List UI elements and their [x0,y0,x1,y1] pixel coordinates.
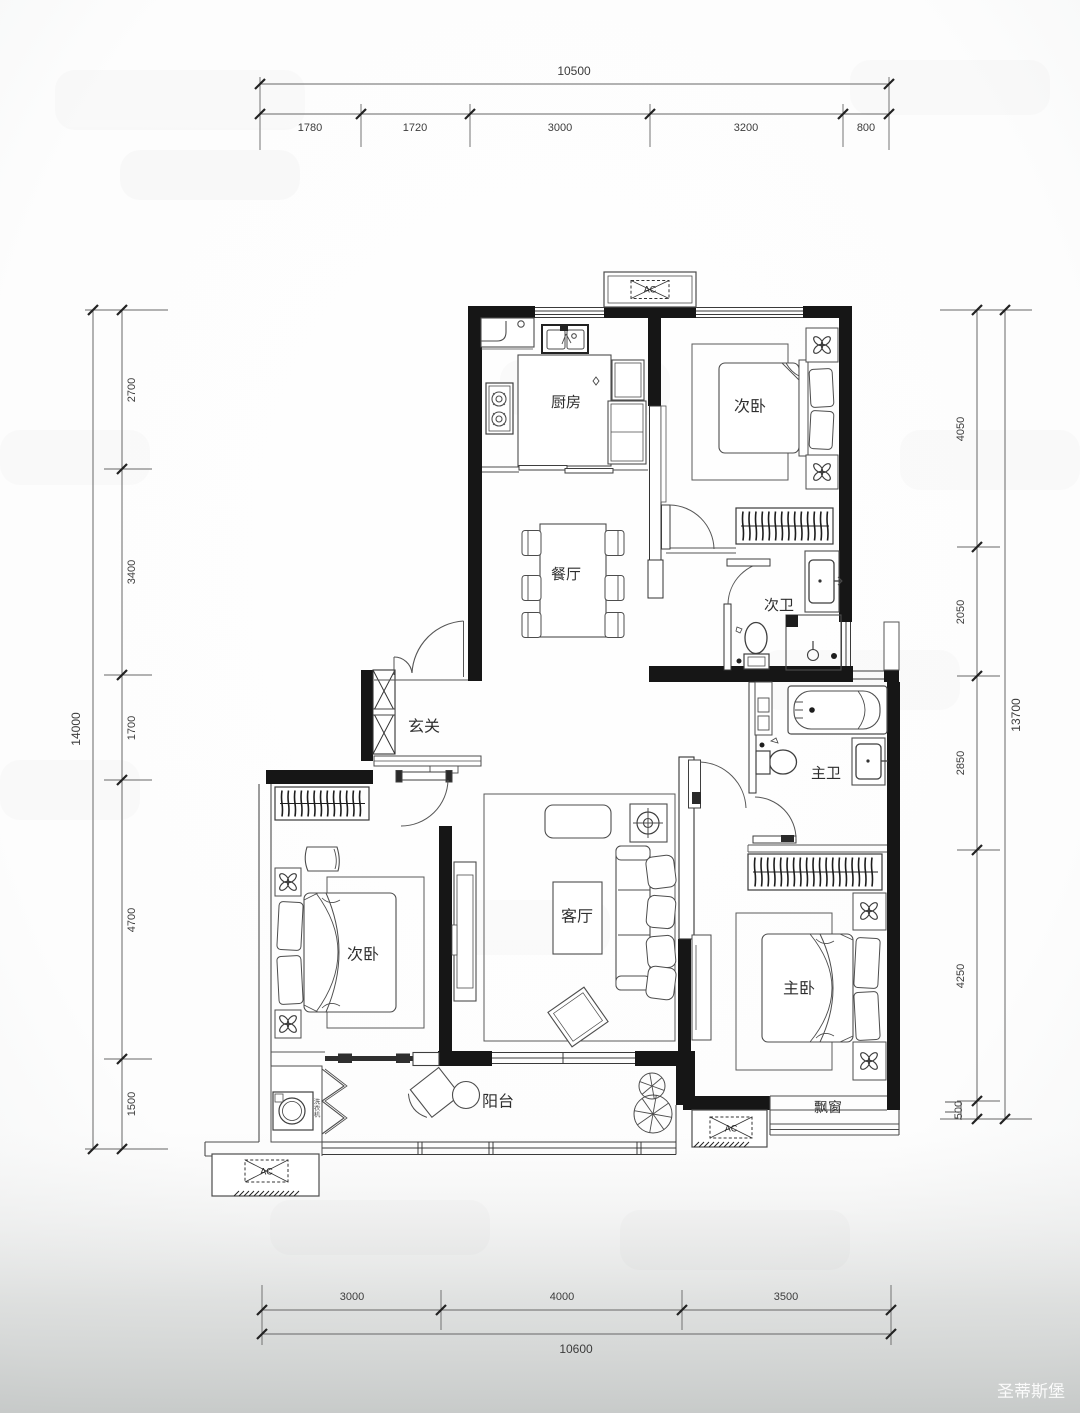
svg-text:4250: 4250 [955,964,967,988]
svg-text:1720: 1720 [403,122,427,134]
svg-text:3000: 3000 [548,122,572,134]
svg-text:500: 500 [953,1101,965,1119]
svg-text:800: 800 [857,122,875,134]
svg-text:4700: 4700 [126,908,138,932]
svg-text:3000: 3000 [340,1291,364,1303]
svg-text:3500: 3500 [774,1291,798,1303]
svg-text:4000: 4000 [550,1291,574,1303]
svg-text:10600: 10600 [559,1342,593,1356]
svg-text:13700: 13700 [1009,698,1023,732]
svg-text:1700: 1700 [126,716,138,740]
svg-text:3400: 3400 [126,560,138,584]
svg-text:4050: 4050 [955,417,967,441]
svg-text:AC: AC [725,1123,738,1133]
svg-text:AC: AC [260,1166,273,1176]
svg-text:AC: AC [644,285,657,295]
svg-text:3200: 3200 [734,122,758,134]
svg-text:10500: 10500 [557,64,591,78]
svg-text:2850: 2850 [955,751,967,775]
svg-text:1500: 1500 [126,1092,138,1116]
svg-text:1780: 1780 [298,122,322,134]
svg-text:2050: 2050 [955,600,967,624]
svg-text:2700: 2700 [126,378,138,402]
svg-text:14000: 14000 [69,712,83,746]
